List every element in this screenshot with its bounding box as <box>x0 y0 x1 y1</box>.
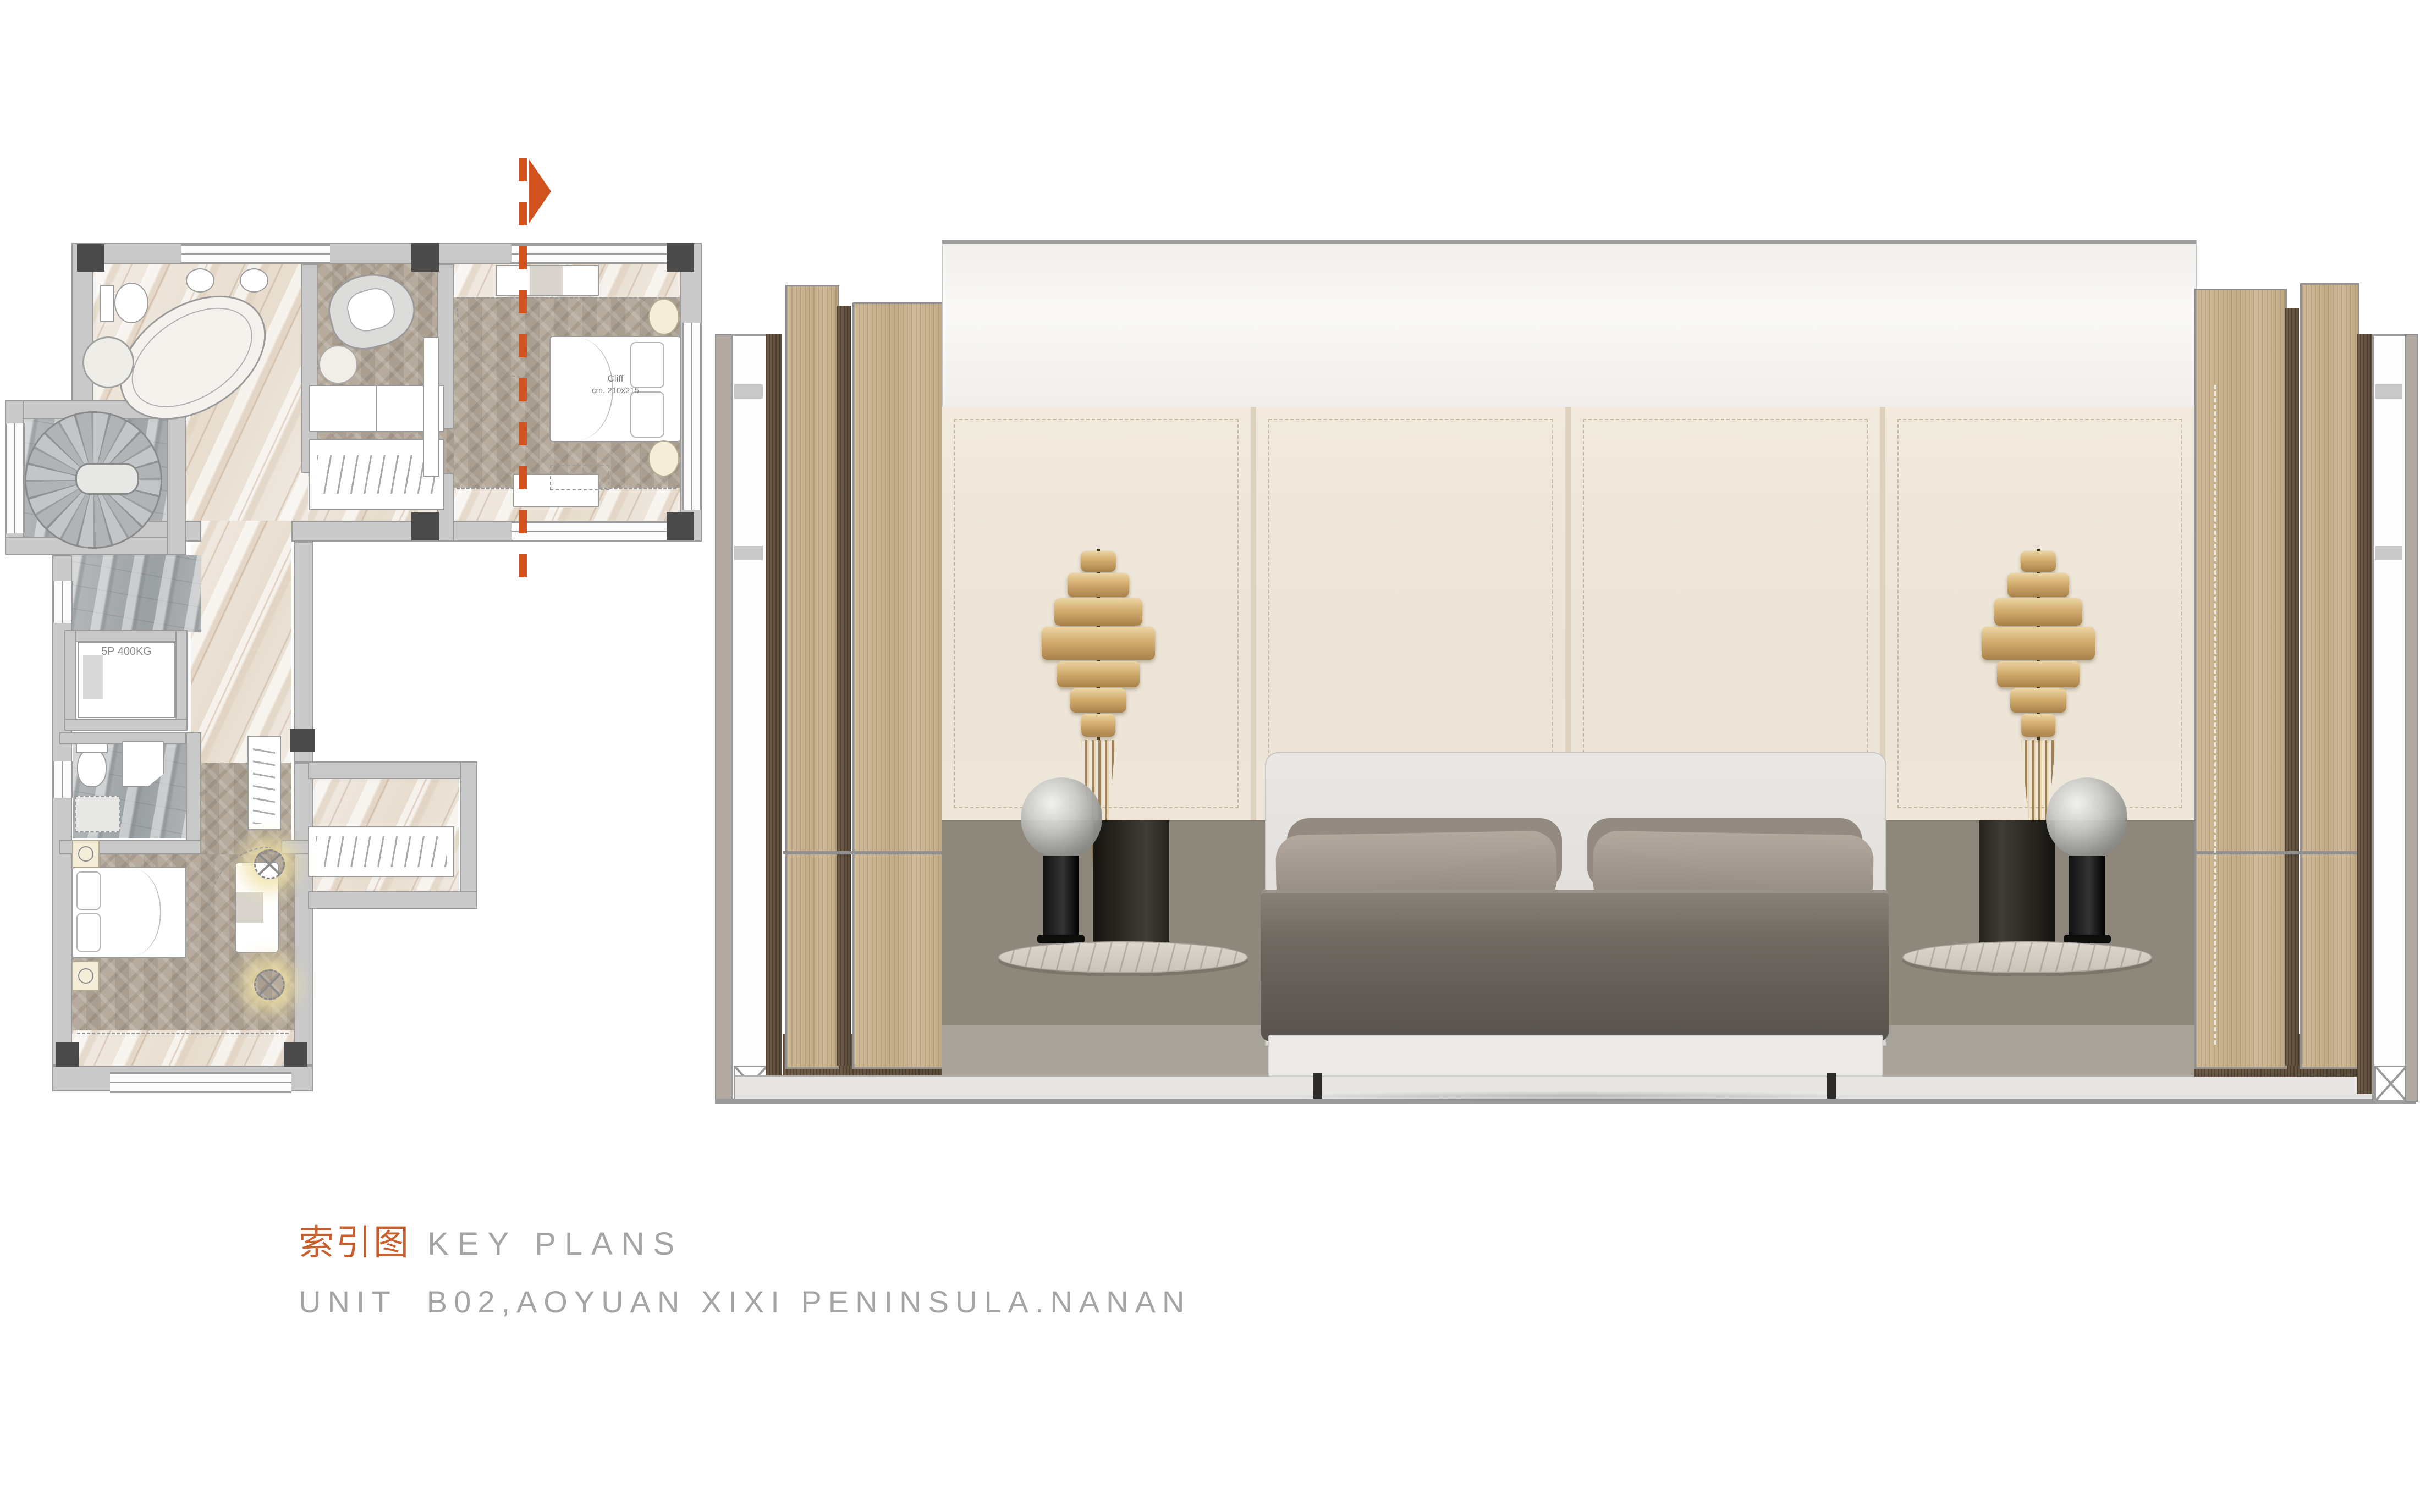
oak-panel <box>2300 283 2359 1069</box>
sconce-tier <box>2021 714 2055 737</box>
page-subtitle: UNIT B02,AOYUAN XIXI PENINSULA.NANAN <box>299 1287 1454 1317</box>
page-title-cn: 索引图 <box>299 1225 411 1260</box>
window-transom <box>734 546 763 560</box>
title-block: 索引图 KEY PLANS UNIT B02,AOYUAN XIXI PENIN… <box>299 1225 1454 1317</box>
oak-panel <box>785 285 839 1069</box>
glazing-section-icon <box>2374 1066 2407 1102</box>
table-lamp-glass-globe <box>2046 777 2127 859</box>
bed-duvet <box>1261 890 1889 1041</box>
sconce-tier <box>1081 551 1116 572</box>
oak-seam <box>783 851 943 854</box>
sconce-tier <box>1057 661 1140 687</box>
led-dashed-line <box>2214 385 2216 1045</box>
bed-shadow <box>1281 1091 1870 1102</box>
window-transom <box>734 384 763 399</box>
nightstand-marble-top <box>1902 941 2152 973</box>
stitch-border <box>1268 419 1553 808</box>
ceiling-band <box>942 240 2197 413</box>
table-lamp-base <box>2069 856 2105 943</box>
page-title-en: KEY PLANS <box>427 1228 683 1260</box>
oak-panel <box>853 302 945 1069</box>
sconce-tier <box>1081 714 1115 737</box>
sconce-tier <box>2021 551 2056 572</box>
window-jamb-strip <box>2357 334 2372 1094</box>
sconce-tier <box>1070 688 1126 713</box>
sconce-tier <box>1054 598 1142 626</box>
oak-panel <box>2194 289 2287 1069</box>
stitch-border <box>1583 419 1868 808</box>
window-glazing-strip <box>732 334 769 1103</box>
window-transom <box>2375 384 2402 399</box>
table-lamp-base <box>1043 856 1079 943</box>
window-glazing-strip <box>2372 334 2408 1103</box>
window-transom <box>2375 546 2402 560</box>
window-backing-strip <box>2405 334 2418 1102</box>
sconce-tier <box>1994 598 2082 626</box>
design-board-page: Cliff cm. 210x215 5P 400KG <box>0 0 2420 1512</box>
sconce-tier <box>2010 688 2066 713</box>
window-jamb-strip <box>766 334 782 1094</box>
sconce-tier <box>1068 573 1129 597</box>
window-backing-strip <box>715 334 734 1102</box>
table-lamp-glass-globe <box>1021 777 1102 859</box>
sconce-tier <box>1982 627 2095 660</box>
oak-seam <box>2194 851 2357 854</box>
sconce-tier <box>1997 661 2080 687</box>
oak-groove <box>2285 308 2299 1066</box>
sconce-tier <box>1042 627 1155 660</box>
oak-groove <box>837 306 851 1066</box>
bedroom-elevation <box>0 0 2420 1155</box>
bed-base <box>1268 1035 1883 1077</box>
sconce-tier <box>2008 573 2069 597</box>
nightstand-marble-top <box>998 941 1248 973</box>
